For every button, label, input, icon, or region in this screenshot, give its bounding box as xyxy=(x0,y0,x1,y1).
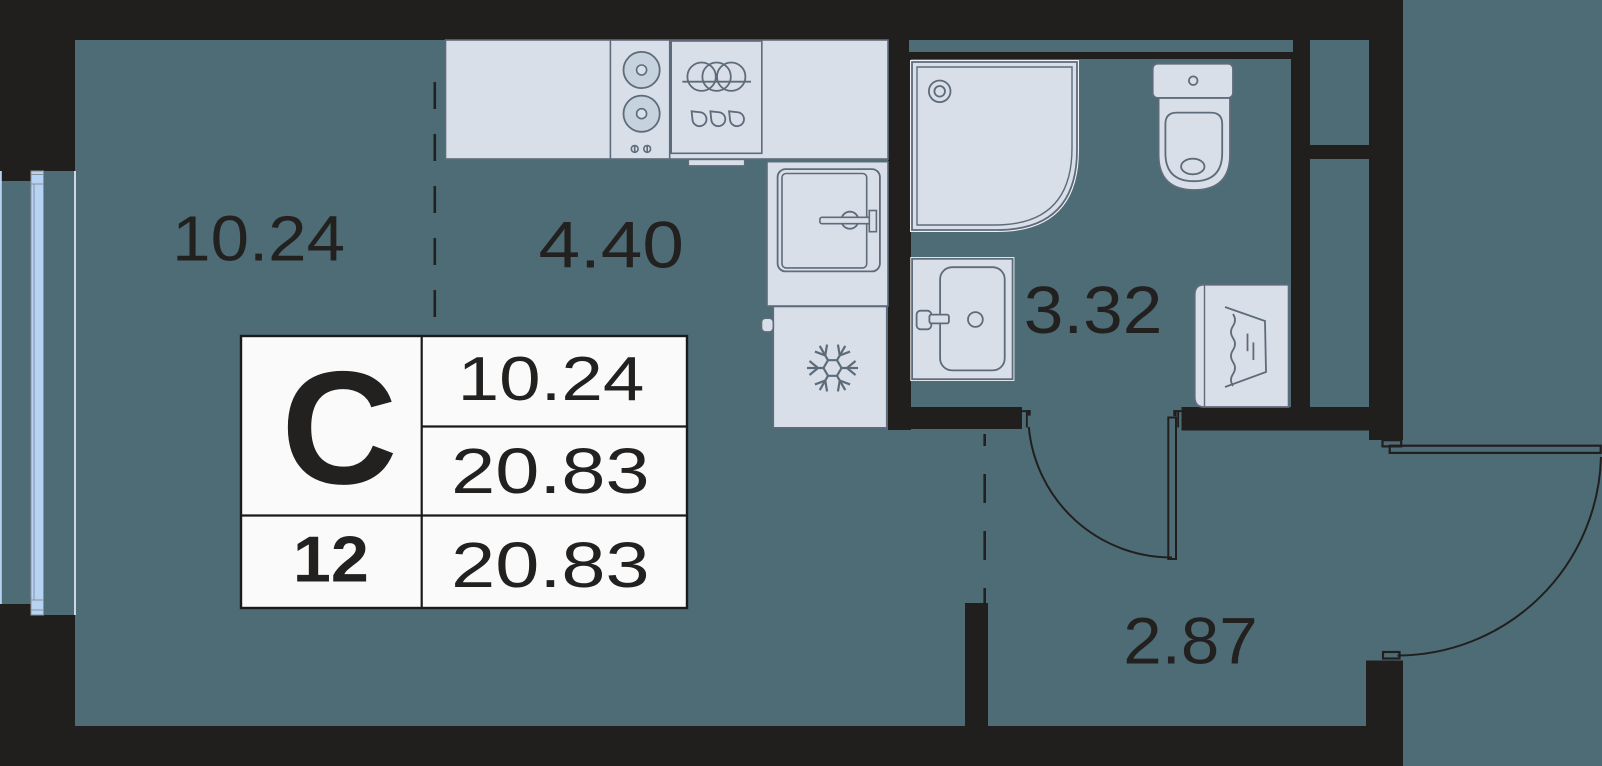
svg-text:20.83: 20.83 xyxy=(451,529,650,601)
svg-text:4.40: 4.40 xyxy=(539,208,684,282)
svg-text:20.83: 20.83 xyxy=(451,435,650,507)
svg-text:2.87: 2.87 xyxy=(1123,603,1258,677)
svg-text:С: С xyxy=(281,338,397,518)
svg-text:10.24: 10.24 xyxy=(458,345,645,414)
svg-text:10.24: 10.24 xyxy=(172,203,345,275)
svg-text:12: 12 xyxy=(293,524,369,596)
svg-text:3.32: 3.32 xyxy=(1024,273,1163,348)
